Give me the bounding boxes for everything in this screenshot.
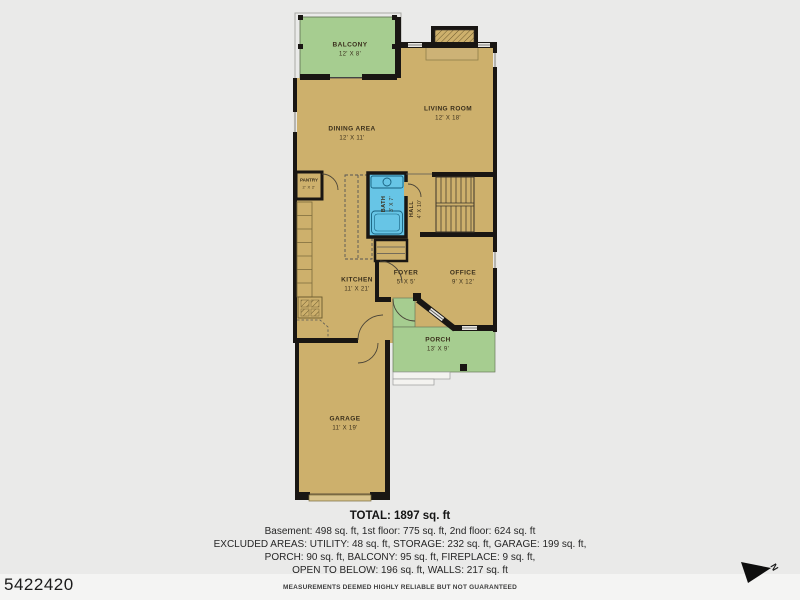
room-dims: 4' X 10' <box>416 200 424 219</box>
room-dims: 12' X 18' <box>424 114 472 123</box>
room-label-garage: GARAGE 11' X 19' <box>330 414 361 433</box>
hearth <box>426 46 478 60</box>
room-name: PANTRY <box>300 177 318 184</box>
room-name: FOYER <box>394 268 418 278</box>
room-dims: 13' X 9' <box>425 345 450 354</box>
listing-id: 5422420 <box>4 575 74 595</box>
floorplan-page: BALCONY 12' X 8' LIVING ROOM 12' X 18' D… <box>0 0 800 600</box>
room-dims: 2' X 2' <box>300 184 318 190</box>
porch-post <box>460 364 467 371</box>
room-label-kitchen: KITCHEN 11' X 21' <box>341 275 373 294</box>
room-label-office: OFFICE 9' X 12' <box>450 268 476 287</box>
excluded-areas-2: PORCH: 90 sq. ft, BALCONY: 95 sq. ft, FI… <box>0 551 800 564</box>
compass: N <box>718 548 798 598</box>
room-name: DINING AREA <box>328 124 375 134</box>
north-label: N <box>768 562 780 573</box>
room-label-dining-area: DINING AREA 12' X 11' <box>328 124 375 143</box>
room-dims: 12' X 8' <box>333 50 368 59</box>
room-name: KITCHEN <box>341 275 373 285</box>
room-name: PORCH <box>425 335 450 345</box>
excluded-areas-1: EXCLUDED AREAS: UTILITY: 48 sq. ft, STOR… <box>0 538 800 551</box>
porch-step <box>393 379 434 385</box>
north-arrow-icon <box>741 562 771 583</box>
floors-areas: Basement: 498 sq. ft, 1st floor: 775 sq.… <box>0 525 800 538</box>
room-label-hall: HALL 4' X 10' <box>408 200 424 219</box>
excluded-areas-3: OPEN TO BELOW: 196 sq. ft, WALLS: 217 sq… <box>0 564 800 577</box>
total-area: TOTAL: 1897 sq. ft <box>0 510 800 522</box>
room-label-balcony: BALCONY 12' X 8' <box>333 40 368 59</box>
room-dims: 11' X 21' <box>341 285 373 294</box>
area-summary: TOTAL: 1897 sq. ft Basement: 498 sq. ft,… <box>0 510 800 591</box>
room-name: GARAGE <box>330 414 361 424</box>
foyer-closet <box>375 240 407 261</box>
room-label-pantry: PANTRY 2' X 2' <box>300 177 318 190</box>
porch-step <box>393 372 450 379</box>
room-dims: 11' X 19' <box>330 424 361 433</box>
room-name: LIVING ROOM <box>424 104 472 114</box>
room-name: OFFICE <box>450 268 476 278</box>
floorplan-drawing <box>290 12 502 504</box>
room-name: BATH <box>380 196 389 212</box>
room-label-living-room: LIVING ROOM 12' X 18' <box>424 104 472 123</box>
room-dims: 9' X 12' <box>450 278 476 287</box>
room-dims: 12' X 11' <box>328 134 375 143</box>
room-label-foyer: FOYER 5' X 5' <box>394 268 418 287</box>
room-name: HALL <box>408 200 417 219</box>
disclaimer-text: MEASUREMENTS DEEMED HIGHLY RELIABLE BUT … <box>0 584 800 591</box>
room-label-bath: BATH 3' X 7' <box>380 196 396 212</box>
room-dims: 5' X 5' <box>394 278 418 287</box>
room-label-porch: PORCH 13' X 9' <box>425 335 450 354</box>
room-dims: 3' X 7' <box>388 196 396 212</box>
garage-door <box>309 494 371 501</box>
stairs <box>436 177 474 232</box>
room-name: BALCONY <box>333 40 368 50</box>
